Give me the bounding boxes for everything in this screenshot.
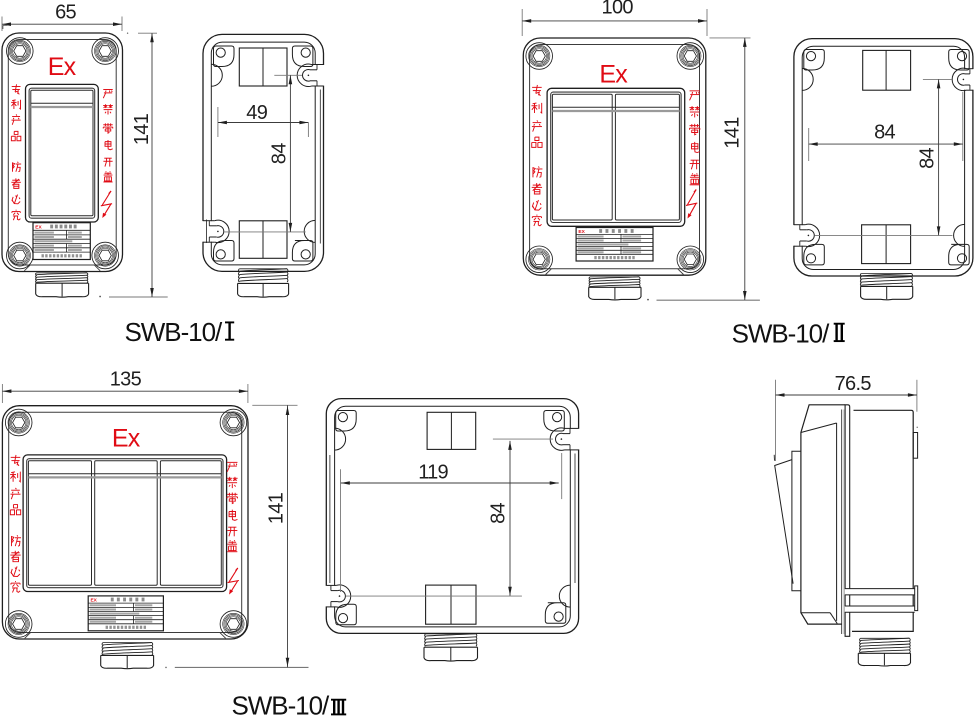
svg-text:Ex: Ex <box>112 425 141 453</box>
svg-text:141: 141 <box>131 113 153 145</box>
svg-text:SWB-10/: SWB-10/ <box>232 691 331 718</box>
svg-text:84: 84 <box>916 148 938 169</box>
svg-text:SWB-10/: SWB-10/ <box>125 317 224 347</box>
svg-text:141: 141 <box>722 117 744 149</box>
svg-text:EX: EX <box>35 225 42 231</box>
svg-text:Ex: Ex <box>48 53 77 81</box>
svg-text:EX: EX <box>578 229 585 235</box>
svg-text:SWB-10/: SWB-10/ <box>732 319 831 349</box>
svg-text:119: 119 <box>418 462 448 484</box>
svg-text:EX: EX <box>90 598 97 604</box>
svg-text:49: 49 <box>246 102 267 124</box>
svg-text:Ex: Ex <box>599 61 628 89</box>
svg-text:135: 135 <box>110 369 142 391</box>
svg-text:84: 84 <box>874 121 895 143</box>
svg-text:84: 84 <box>488 503 510 524</box>
svg-text:84: 84 <box>268 143 290 164</box>
svg-text:141: 141 <box>266 492 288 524</box>
svg-text:76.5: 76.5 <box>835 373 872 395</box>
svg-text:65: 65 <box>55 1 76 23</box>
svg-text:100: 100 <box>602 0 634 19</box>
